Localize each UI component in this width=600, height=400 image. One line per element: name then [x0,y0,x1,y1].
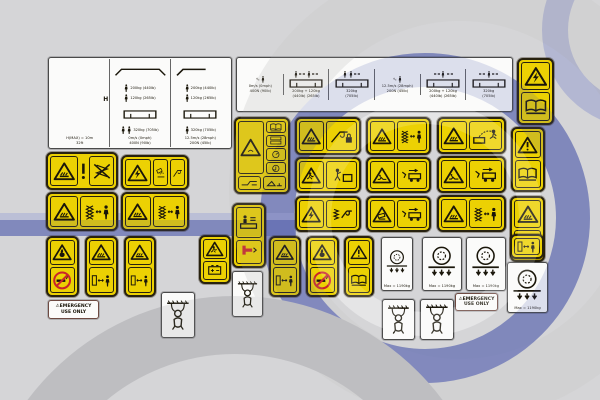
decal-eject-person-warning [437,117,506,154]
person-icon [124,84,129,93]
warning-triangle-crush-hand-icon [125,196,151,227]
height-letter: H [103,96,108,103]
emergency-line2: USE ONLY [464,302,489,308]
outdoor-wind: 12.5m/s (28mph) [185,136,216,140]
strip-combo-load-lb-1: (440lb) (265lb) [292,94,319,98]
warning-triangle-icon [238,121,264,174]
decal-wheel-load-4: Max = 1190kg [507,262,548,313]
outdoor-load-320: 320kg (705lb) [191,128,216,132]
decal-electrocution-read-manual [517,58,554,125]
warning-triangle-crush-hand-icon [370,121,395,151]
scissor-clearance-icon [80,196,114,227]
strip-wind-indoor: 0m/s (0mph) [249,84,272,88]
warning-triangle-crush-hand-icon [89,240,114,265]
scissor-clearance-icon [153,196,185,227]
warning-triangle-crush-hand-icon [441,121,467,150]
height-max-line2: 32ft [76,141,83,145]
strip-force-indoor: 400N (90lb) [250,89,271,93]
decal-emergency-use-only-1: ⚠EMERGENCY USE ONLY [48,300,99,319]
decal-crush-keep-clear-2 [124,236,156,297]
battery-charge-icon [203,261,227,280]
machine-roll-icon [397,161,427,189]
decal-flame-no-smoking-1 [46,236,79,297]
warning-triangle-fall-icon [203,239,227,259]
decal-sheet-image: H H(MAX) = 10m 32ft 200kg (440lb) 120kg … [0,0,600,400]
wheel-load-text: Max = 1190kg [429,284,455,288]
warning-triangle-crush-hand-icon [50,196,78,227]
spec-outdoor-section: 200kg (440lb) 120kg (265lb) 320kg (705lb… [171,59,230,147]
strip-combo-load-2: 200kg + 120kg [429,89,457,93]
scissor-lift-icon [51,61,108,135]
manual-book-icon [515,160,541,188]
wheel-load-icon [510,265,545,306]
wheel-load-icon [469,240,503,284]
eject-person-icon [469,121,502,150]
wind-meter-icon [256,76,260,83]
strip-combo-load-1: 200kg + 120kg [292,89,320,93]
warning-triangle-pothole-icon [441,160,467,189]
indoor-load-200: 200kg (440lb) [130,86,155,90]
strip-320-lb-2: (705lb) [482,94,495,98]
strip-combo-load-section-1: 200kg + 120kg (440lb) (265lb) [284,69,330,100]
decal-spec-panel: H H(MAX) = 10m 32ft 200kg (440lb) 120kg … [48,57,232,149]
keep-clearance-icon [89,267,114,293]
wheel-load-icon [384,240,410,284]
load-dash-icon [479,72,485,76]
strip-320-1: 320kg [346,89,357,93]
indoor-wind: 0m/s (0mph) [128,136,151,140]
platform-icon [330,79,373,88]
decal-crush-no-standing [46,152,118,190]
warning-triangle-electric-icon [299,200,324,228]
platform-icon [285,79,328,88]
wheel-load-text: Max = 1190kg [384,284,410,288]
warning-triangle-crush-hand-icon [128,240,152,265]
person-icon [261,76,265,83]
decal-ground-roll-2 [437,156,506,193]
person-platform-icon [236,207,262,238]
outdoor-load-120: 120kg (265lb) [191,96,216,100]
no-smoking-icon [50,267,75,293]
decal-fall-step-platform [295,157,361,193]
decal-scissor-clearance-4 [437,195,506,232]
outrigger-icon [238,176,261,190]
keep-clearance-icon [273,267,297,293]
crane-hook-icon [170,159,185,186]
decal-emergency-use-only-2: ⚠EMERGENCY USE ONLY [455,293,498,311]
strip-combo-load-section-2: 200kg + 120kg (440lb) (265lb) [421,69,467,100]
emergency-descent-handle-icon [236,240,262,265]
indoor-load-120: 120kg (265lb) [130,96,155,100]
decal-falling-object-battery [199,235,231,284]
crossed-scissor-icon [89,156,114,186]
warning-triangle-exclamation-icon [348,240,370,265]
platform-icon [111,103,168,125]
person-icon [294,71,298,78]
warning-triangle-flame-icon [310,240,335,265]
step-platform-icon [326,161,357,189]
keep-clearance-icon [514,238,540,255]
platform-icon [467,79,510,88]
person-icon [185,126,190,135]
outdoor-load-200: 200kg (440lb) [191,86,216,90]
load-dash-icon [434,72,440,76]
platform-icon [422,79,465,88]
strip-combo-load-lb-2: (440lb) (265lb) [430,94,457,98]
person-icon [185,84,190,93]
strip-320-2: 320kg [483,89,494,93]
platform-icon [172,103,229,125]
load-dash-icon [447,72,453,76]
wheel-load-text: Max = 1190kg [473,284,499,288]
warning-triangle-crush-hand-icon [273,240,297,265]
control-box-icon [266,135,286,147]
load-dash-icon [354,72,360,76]
decal-wheel-load-1: Max = 1190kg [381,237,413,291]
decal-flame-no-smoking-2 [306,236,339,297]
strip-wind-outdoor: 12.5m/s (28mph) [382,84,413,88]
harness-anchor-icon [385,302,412,337]
gauge-icon [266,148,286,160]
decal-multi-hazard-panel [234,117,290,194]
warning-triangle-crush-hand-icon [50,156,78,186]
warning-triangle-tipover-icon [370,200,395,228]
decal-wheel-load-2: Max = 1190kg [422,237,462,291]
warning-triangle-electric-icon [521,62,550,90]
decal-electric-acid-boom [121,155,189,190]
load-dash-icon [299,72,305,76]
indoor-force: 400N (90lb) [129,141,150,145]
scissor-clearance-icon [469,199,502,228]
manual-book-icon [266,121,286,133]
outdoor-force: 200N (45lb) [190,141,211,145]
decal-ground-roll-1 [366,157,431,193]
strip-indoor-wind-section: 0m/s (0mph) 400N (90lb) [238,74,284,95]
wheel-chock-icon [263,176,286,190]
decal-harness-anchor-1 [232,271,263,317]
harness-anchor-icon [423,302,451,337]
harness-anchor-icon [164,295,192,335]
strip-320-section-1: 320kg (705lb) [329,69,375,100]
decal-crane-lock-warning [295,117,361,155]
spec-height-section: H H(MAX) = 10m 32ft [50,59,110,147]
exclamation-icon [80,156,88,186]
wind-meter-icon [393,76,397,83]
person-icon [343,71,347,78]
machine-roll-icon [469,160,502,189]
decal-harness-anchor-4 [420,299,454,340]
warning-triangle-crush-hand-icon [514,200,541,228]
spring-jib-icon [326,200,357,228]
decal-electric-spring-boom [295,196,361,232]
decal-attention-read-manual [511,127,545,192]
scissor-clearance-icon [397,121,427,151]
warning-triangle-exclamation-icon [515,131,541,158]
decal-harness-anchor-3 [382,299,415,340]
warning-triangle-pothole-icon [370,161,395,189]
emergency-line2: USE ONLY [61,310,86,316]
decal-scissor-clearance-2 [121,192,189,231]
person-icon [124,94,129,103]
decal-harness-anchor-2 [161,292,195,338]
spec-indoor-section: 200kg (440lb) 120kg (265lb) 320kg (705lb… [110,59,170,147]
load-dash-icon [312,72,318,76]
wheel-load-text: Max = 1190kg [514,306,540,310]
decal-scissor-clearance-1 [46,192,118,231]
wheel-load-icon [425,240,459,284]
strip-320-section-2: 320kg (705lb) [466,69,511,100]
hook-circle-icon [266,162,286,174]
no-smoking-icon [310,267,335,293]
keep-clearance-icon [128,267,152,293]
manual-book-icon [521,92,550,121]
outdoor-roof-icon [172,61,229,83]
person-icon [398,76,402,83]
person-icon [127,126,132,135]
crane-hook-lock-icon [326,121,357,151]
person-icon [121,126,126,135]
indoor-roof-icon [111,61,168,83]
decal-spec-strip: 0m/s (0mph) 400N (90lb) 200kg + 120kg (4… [236,57,513,112]
decal-emergency-descent [232,203,266,268]
person-icon [349,71,353,78]
person-icon [441,71,445,78]
warning-triangle-electric-icon [125,159,151,186]
acid-pour-icon [153,159,168,186]
harness-anchor-icon [235,274,260,314]
height-max-line1: H(MAX) = 10m [66,136,93,140]
warning-triangle-flame-icon [50,240,75,265]
warning-triangle-crush-hand-icon [299,121,324,151]
warning-triangle-crush-hand-icon [441,199,467,228]
person-icon [487,71,491,78]
decal-tipover-roll [366,196,431,232]
indoor-load-320: 320kg (705lb) [133,128,158,132]
decal-attention-read-manual-2 [344,236,374,297]
strip-320-lb-1: (705lb) [345,94,358,98]
decal-crush-keep-clear-1 [85,236,118,297]
warning-triangle-fall-icon [299,161,324,189]
decal-crush-keep-clear-3 [269,236,301,297]
manual-book-icon [348,267,370,293]
load-dash-icon [492,72,498,76]
person-icon [185,94,190,103]
person-icon [307,71,311,78]
strip-outdoor-wind-section: 12.5m/s (28mph) 200N (45lb) [375,74,421,95]
machine-roll-icon [397,200,427,228]
strip-force-outdoor: 200N (45lb) [387,89,408,93]
decal-wheel-load-3: Max = 1190kg [466,237,506,291]
decal-scissor-clearance-3 [366,117,431,155]
decal-keep-clearance-small [510,234,544,259]
